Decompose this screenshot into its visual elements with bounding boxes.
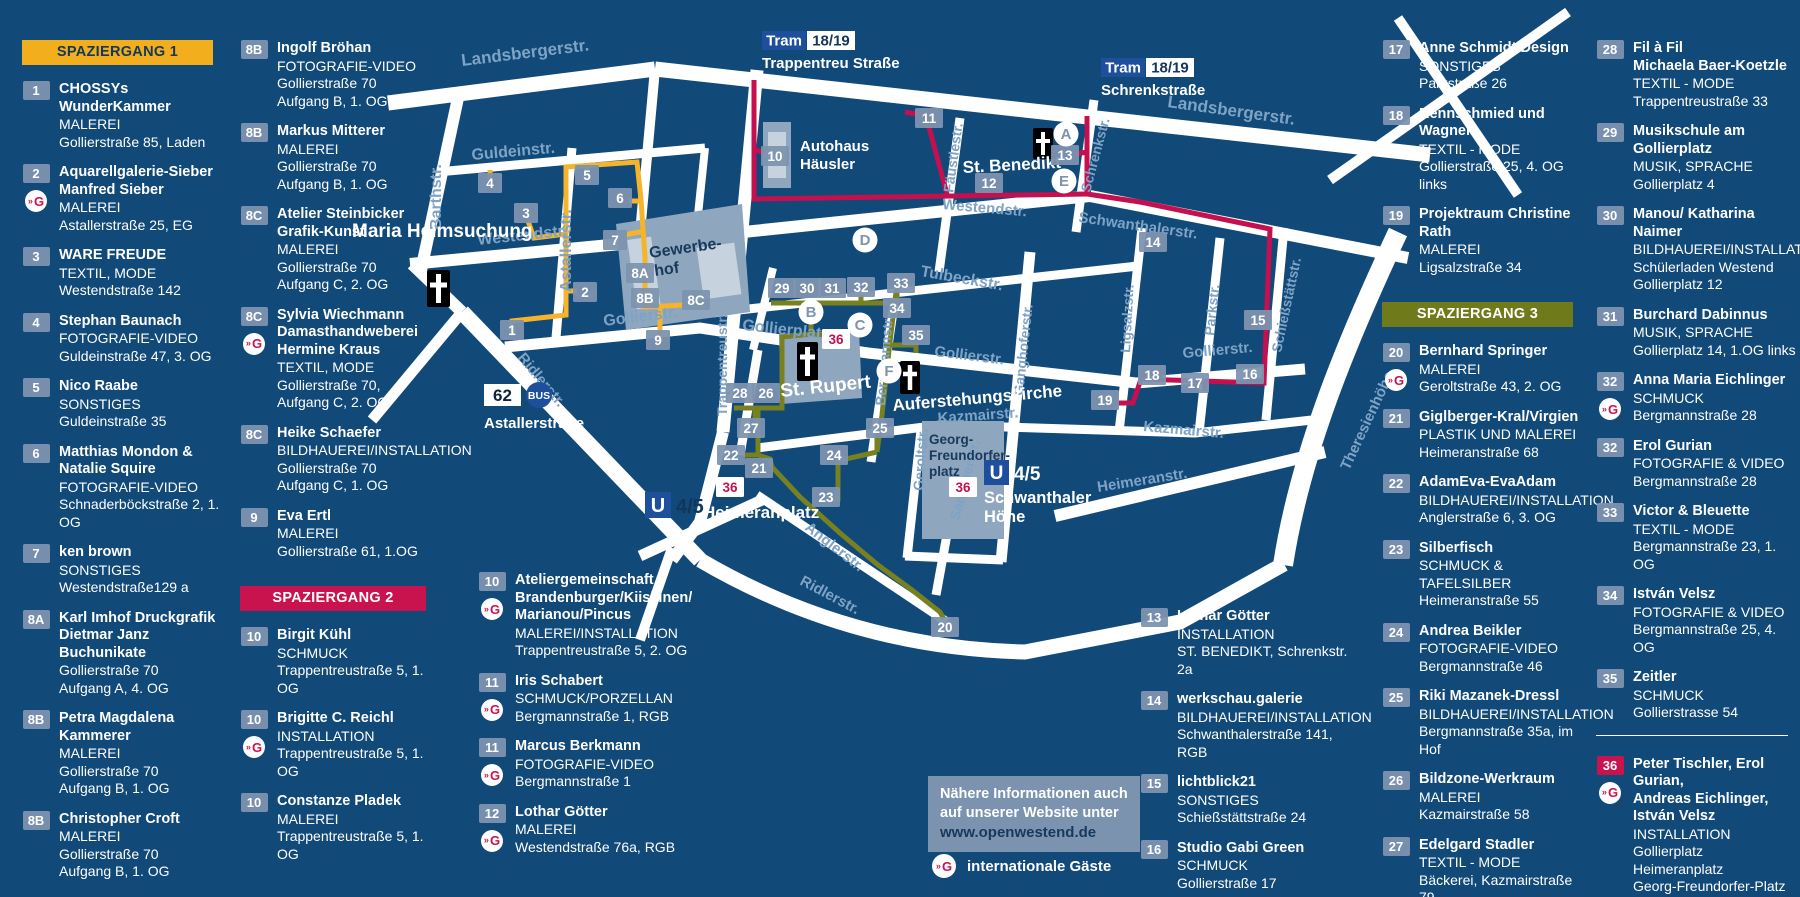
church-st-rupert-icon: [797, 342, 818, 381]
entry-address: Bergmannstraße 23, 1. OG: [1633, 538, 1796, 573]
international-guest-icon: »G: [1385, 369, 1407, 391]
map-marker-35: 35: [902, 325, 930, 345]
entry-number: 14: [1141, 691, 1168, 710]
directory-entry: 19Projektraum Christine RathMALEREILigsa…: [1382, 206, 1587, 276]
svg-text:8A: 8A: [631, 266, 649, 281]
map-marker-10: 10: [761, 146, 789, 166]
entry-name: Constanze Pladek: [277, 793, 440, 811]
entry-name: AdamEva-EvaAdam: [1419, 474, 1587, 492]
directory-entry: 12»GLothar GötterMALEREIWestendstraße 76…: [478, 804, 693, 857]
map-marker-2: 2: [573, 282, 597, 302]
entry-discipline: BILDHAUEREI/INSTALLATION: [1177, 709, 1360, 727]
entry-badges: 21: [1382, 409, 1410, 462]
entry-discipline: MALEREI/INSTALLATION: [515, 625, 692, 643]
svg-text:26: 26: [758, 386, 774, 401]
international-guest-icon: »G: [481, 764, 503, 786]
ubahn-u: U: [990, 463, 1004, 484]
entry-badges: 26: [1382, 771, 1410, 824]
svg-text:27: 27: [743, 421, 758, 436]
directory-column-2: 8BIngolf BröhanFOTOGRAFIE-VIDEOGollierst…: [240, 40, 440, 876]
international-guest-icon: »G: [481, 598, 503, 620]
entry-badges: 28: [1596, 40, 1624, 110]
entry-discipline: INSTALLATION: [1633, 826, 1796, 844]
entry-discipline: SCHMUCK: [1633, 390, 1785, 408]
bus-number: 62: [493, 386, 512, 405]
directory-entry: 8BPetra Magdalena KammererMALEREIGollier…: [22, 710, 227, 798]
entry-badges: 29: [1596, 123, 1624, 193]
entry-number: 6: [23, 444, 50, 463]
entry-discipline: TEXTIL - MODE: [1633, 75, 1787, 93]
tram-number: 18/19: [1151, 60, 1189, 77]
entry-discipline: MUSIK, SPRACHE: [1633, 324, 1796, 342]
entry-number: 29: [1597, 123, 1624, 142]
directory-entry: 10»GBrigitte C. ReichlINSTALLATIONTrappe…: [240, 710, 440, 780]
directory-entry: 20»GBernhard SpringerMALEREIGeroltstraße…: [1382, 343, 1587, 396]
svg-text:F: F: [884, 363, 893, 380]
directory-entry: 21Giglberger-Kral/VirgienPLASTIK UND MAL…: [1382, 409, 1587, 462]
entry-badges: 10»G: [478, 572, 506, 660]
directory-entry: 9Eva ErtlMALEREIGollierstraße 61, 1.OG: [240, 508, 440, 561]
entry-badges: 8A: [22, 610, 50, 698]
directory-entry: 31Burchard DabinnusMUSIK, SPRACHEGollier…: [1596, 307, 1796, 360]
entry-badges: 8B: [22, 811, 50, 881]
entry-name: Manou/ Katharina Naimer: [1633, 206, 1796, 241]
website-url[interactable]: www.openwestend.de: [940, 823, 1128, 843]
svg-text:34: 34: [889, 301, 905, 316]
entry-name: Ingolf Bröhan: [277, 40, 416, 58]
svg-text:14: 14: [1145, 235, 1161, 250]
directory-entry: 34István VelszFOTOGRAFIE & VIDEOBergmann…: [1596, 586, 1796, 656]
directory-entry: 8BChristopher CroftMALEREIGollierstraße …: [22, 811, 227, 881]
svg-text:D: D: [860, 232, 871, 249]
entry-badges: 33: [1596, 503, 1624, 573]
entry-number: 4: [23, 313, 50, 332]
entry-number: 32: [1597, 372, 1624, 391]
entry-address: Gollierstrasse 54: [1633, 704, 1738, 722]
entry-badges: 30: [1596, 206, 1624, 294]
entry-name: Heike Schaefer: [277, 425, 440, 443]
directory-entry: 10Constanze PladekMALEREITrappentreustra…: [240, 793, 440, 863]
entry-badges: 12»G: [478, 804, 506, 857]
map-marker-22: 22: [717, 445, 745, 465]
entry-discipline: SCHMUCK/PORZELLAN: [515, 690, 673, 708]
entry-name: Edelgard Stadler: [1419, 837, 1587, 855]
directory-entry: 3WARE FREUDETEXTIL, MODEWestendstraße 14…: [22, 247, 227, 300]
entry-badges: 32»G: [1596, 372, 1624, 425]
directory-entry: 30Manou/ Katharina NaimerBILDHAUEREI/INS…: [1596, 206, 1796, 294]
map-marker-18: 18: [1138, 365, 1166, 385]
entry-name: Stephan Baunach: [59, 313, 212, 331]
street-label: Gollierstr.: [1182, 339, 1253, 362]
entry-address: Ligsalzstraße 34: [1419, 259, 1587, 277]
info-line2: auf unserer Website unter: [940, 804, 1128, 823]
entry-address: Anglerstraße 6, 3. OG: [1419, 509, 1587, 527]
svg-text:17: 17: [1187, 376, 1202, 391]
entry-badges: 36»G: [1596, 756, 1624, 896]
entry-number: 10: [479, 572, 506, 591]
entry-number: 20: [1383, 343, 1410, 362]
entry-name: Rennschmied und Wagner: [1419, 106, 1587, 141]
walk-header: SPAZIERGANG 1: [22, 40, 213, 65]
entry-number: 33: [1597, 503, 1624, 522]
entry-number: 16: [1141, 840, 1168, 859]
map-marker-E: E: [1052, 169, 1077, 194]
entry-address: Bäckerei, Kazmairstraße 79: [1419, 872, 1587, 897]
street-gfp-bottom: [905, 556, 1003, 560]
entry-address: Heimeranstraße 55: [1419, 592, 1587, 610]
directory-entry: 6Matthias Mondon & Natalie SquireFOTOGRA…: [22, 444, 227, 532]
entry-badges: 6: [22, 444, 50, 532]
entry-name: Projektraum Christine Rath: [1419, 206, 1587, 241]
entry-name: Eva Ertl: [277, 508, 418, 526]
tram-station-name: Trappentreu Straße: [762, 55, 900, 72]
gfp-label-line1: Georg-: [929, 432, 973, 447]
directory-entry: 17Anne Schmidt DesignSONSTIGESParkstraße…: [1382, 40, 1587, 93]
entry-address: Trappentreustraße 5, 1. OG: [277, 662, 440, 697]
tram-station-name: Schrenkstraße: [1101, 82, 1205, 99]
tram-label: Tram: [1105, 60, 1141, 77]
entry-badges: 17: [1382, 40, 1410, 93]
entry-discipline: MALEREI: [277, 811, 440, 829]
entry-number: 8B: [241, 123, 268, 142]
svg-text:23: 23: [818, 490, 834, 505]
entry-discipline: BILDHAUEREI/INSTALLATION: [1419, 706, 1587, 724]
international-guest-icon: »G: [1599, 782, 1621, 804]
map-marker-29: 29: [768, 278, 796, 298]
directory-entry: 15lichtblick21SONSTIGESSchießstättstraße…: [1140, 774, 1360, 827]
walk-header: SPAZIERGANG 2: [240, 586, 426, 611]
map-marker-11: 11: [915, 108, 943, 128]
svg-text:3: 3: [522, 206, 530, 221]
street-label: Landsbergerstr.: [460, 35, 590, 70]
entry-badges: 8C: [240, 425, 268, 495]
directory-column-6: 28Fil à Fil Michaela Baer-KoetzleTEXTIL …: [1596, 40, 1796, 897]
svg-text:7: 7: [611, 233, 619, 248]
entry-badges: 23: [1382, 540, 1410, 610]
svg-text:25: 25: [872, 421, 888, 436]
ubahn-lines: 4/5: [1014, 464, 1041, 485]
entry-badges: 8B: [22, 710, 50, 798]
entry-address: Gollierstraße 70 Aufgang B, 1. OG: [59, 763, 227, 798]
entry-name: Karl Imhof Druckgrafik Dietmar Janz Buch…: [59, 610, 227, 663]
entry-discipline: MALEREI: [277, 241, 404, 259]
entry-discipline: TEXTIL - MODE: [1419, 854, 1587, 872]
entry-address: Gollierstraße 70 Aufgang B, 1. OG: [277, 158, 388, 193]
svg-text:B: B: [806, 304, 817, 321]
entry-address: Schülerladen Westend Gollierplatz 12: [1633, 259, 1796, 294]
church-auferstehungskirche-icon: [900, 361, 920, 394]
directory-entry: 32»GAnna Maria EichlingerSCHMUCKBergmann…: [1596, 372, 1796, 425]
entry-address: Geroltstraße 43, 2. OG: [1419, 378, 1561, 396]
directory-column-4: 13Lothar GötterINSTALLATIONST. BENEDIKT,…: [1140, 608, 1360, 897]
gewerbehof-label-line2: hof: [653, 260, 681, 280]
ubahn-lines: 4/5: [676, 496, 704, 518]
entry-number: 28: [1597, 40, 1624, 59]
svg-text:31: 31: [824, 281, 840, 296]
svg-text:E: E: [1059, 173, 1069, 190]
entry-address: Gollierstraße 17: [1177, 875, 1304, 893]
schwanthaler-label-line1: Schwanthaler: [984, 489, 1092, 507]
guest-legend: »G internationale Gäste: [932, 854, 1111, 878]
entry-badges: 10: [240, 793, 268, 863]
entry-discipline: FOTOGRAFIE-VIDEO: [59, 479, 227, 497]
entry-address: Gollierstraße 70 Aufgang A, 4. OG: [59, 662, 227, 697]
svg-text:21: 21: [751, 461, 767, 476]
international-guest-icon: »G: [25, 190, 47, 212]
entry-name: Birgit Kühl: [277, 627, 440, 645]
map-marker-21: 21: [745, 458, 773, 478]
entry-number: 31: [1597, 307, 1624, 326]
entry-number: 9: [241, 508, 268, 527]
entry-address: Heimeranstraße 68: [1419, 444, 1578, 462]
map-marker-12: 12: [975, 173, 1003, 193]
entry-number: 21: [1383, 409, 1410, 428]
entry-number: 8C: [241, 307, 268, 326]
map-marker-25: 25: [866, 418, 894, 438]
entry-address: Gollierplatz 4: [1633, 176, 1796, 194]
tram-stop-trappentreu: Tram 18/19 Trappentreu Straße: [762, 31, 900, 72]
directory-entry: 25Riki Mazanek-DresslBILDHAUEREI/INSTALL…: [1382, 688, 1587, 758]
entry-address: Trappentreustraße 5, 2. OG: [515, 642, 692, 660]
map-marker-A: A: [1054, 122, 1079, 147]
entry-number: 1: [23, 81, 50, 100]
entry-badges: 7: [22, 544, 50, 597]
directory-entry: 10Birgit KühlSCHMUCKTrappentreustraße 5,…: [240, 627, 440, 697]
entry-name: Erol Gurian: [1633, 438, 1784, 456]
entry-number: 2: [23, 164, 50, 183]
map-marker-D: D: [853, 228, 878, 253]
map-marker-26: 26: [752, 383, 780, 403]
entry-address: Guldeinstraße 35: [59, 413, 166, 431]
entry-name: Sylvia Wiechmann Damasthandweberei Hermi…: [277, 307, 418, 360]
entry-discipline: TEXTIL - MODE: [1633, 521, 1796, 539]
entry-number: 35: [1597, 669, 1624, 688]
entry-badges: 8B: [240, 123, 268, 193]
svg-text:33: 33: [893, 276, 909, 291]
entry-discipline: BILDHAUEREI/INSTALLATION: [1419, 492, 1587, 510]
entry-name: Andrea Beikler: [1419, 623, 1558, 641]
directory-entry: 8C»GSylvia Wiechmann Damasthandweberei H…: [240, 307, 440, 412]
entry-name: Nico Raabe: [59, 378, 166, 396]
map-marker-36: 36: [716, 477, 744, 497]
directory-entry: 10»GAteliergemeinschaft Brandenburger/Ki…: [478, 572, 693, 660]
entry-address: Westendstraße 142: [59, 282, 181, 300]
directory-entry: 14werkschau.galerieBILDHAUEREI/INSTALLAT…: [1140, 691, 1360, 761]
entry-discipline: FOTOGRAFIE-VIDEO: [1419, 640, 1558, 658]
map-marker-36: 36: [822, 329, 850, 349]
entry-address: Bergmannstraße 1: [515, 773, 654, 791]
map-marker-4: 4: [478, 173, 502, 193]
entry-address: Gollierplatz Heimeranplatz Georg-Freundo…: [1633, 843, 1796, 896]
entry-name: Brigitte C. Reichl: [277, 710, 440, 728]
svg-text:8C: 8C: [687, 293, 705, 308]
entry-discipline: BILDHAUEREI/INSTALLATION: [1633, 241, 1796, 259]
svg-text:24: 24: [826, 448, 842, 463]
entry-discipline: FOTOGRAFIE-VIDEO: [59, 330, 212, 348]
entry-badges: 27: [1382, 837, 1410, 897]
entry-badges: 10»G: [240, 710, 268, 780]
directory-entry: 27Edelgard StadlerTEXTIL - MODEBäckerei,…: [1382, 837, 1587, 897]
svg-text:29: 29: [774, 281, 789, 296]
entry-name: Anna Maria Eichlinger: [1633, 372, 1785, 390]
map-marker-6: 6: [608, 188, 632, 208]
street-label: Astallerstr.: [558, 209, 575, 292]
directory-entry: 36»GPeter Tischler, Erol Gurian, Andreas…: [1596, 756, 1796, 896]
entry-number: 18: [1383, 106, 1410, 125]
entry-address: Schnaderböckstraße 2, 1. OG: [59, 496, 227, 531]
svg-text:36: 36: [955, 480, 971, 495]
entry-discipline: SONSTIGES: [1419, 58, 1569, 76]
entry-badges: 32: [1596, 438, 1624, 491]
directory-entry: 28Fil à Fil Michaela Baer-KoetzleTEXTIL …: [1596, 40, 1796, 110]
entry-badges: 10: [240, 627, 268, 697]
entry-address: Gollierstraße 25, 4. OG links: [1419, 158, 1587, 193]
directory-entry: 7ken brownSONSTIGESWestendstraße129 a: [22, 544, 227, 597]
bus-label: BUS: [528, 390, 550, 402]
entry-address: ST. BENEDIKT, Schrenkstr. 2a: [1177, 643, 1360, 678]
svg-text:15: 15: [1250, 313, 1266, 328]
svg-text:36: 36: [722, 480, 738, 495]
entry-number: 10: [241, 627, 268, 646]
entry-badges: 22: [1382, 474, 1410, 527]
entry-number: 34: [1597, 586, 1624, 605]
entry-badges: 8C: [240, 206, 268, 294]
directory-entry: 22AdamEva-EvaAdamBILDHAUEREI/INSTALLATIO…: [1382, 474, 1587, 527]
entry-name: werkschau.galerie: [1177, 691, 1360, 709]
map-marker-1: 1: [500, 320, 524, 340]
entry-name: Bernhard Springer: [1419, 343, 1561, 361]
entry-discipline: INSTALLATION: [277, 728, 440, 746]
entry-discipline: FOTOGRAFIE-VIDEO: [277, 58, 416, 76]
entry-name: Zeitler: [1633, 669, 1738, 687]
entry-badges: 2»G: [22, 164, 50, 234]
map-marker-27: 27: [737, 418, 765, 438]
entry-number: 11: [479, 673, 506, 692]
entry-discipline: SCHMUCK: [277, 645, 440, 663]
svg-text:10: 10: [767, 149, 782, 164]
street-label: Ganghoferstr.: [1010, 303, 1036, 396]
entry-discipline: MALEREI: [1419, 789, 1555, 807]
entry-badges: 8B: [240, 40, 268, 110]
entry-address: Schießstättstraße 24: [1177, 809, 1306, 827]
guest-legend-label: internationale Gäste: [967, 858, 1111, 875]
entry-badges: 25: [1382, 688, 1410, 758]
map-marker-30: 30: [793, 278, 821, 298]
directory-entry: 8BMarkus MittererMALEREIGollierstraße 70…: [240, 123, 440, 193]
entry-name: Christopher Croft: [59, 811, 180, 829]
entry-discipline: MALEREI: [59, 828, 180, 846]
entry-name: Atelier Steinbicker Grafik-Kunst: [277, 206, 404, 241]
entry-discipline: MALEREI: [1419, 241, 1587, 259]
entry-number: 8C: [241, 206, 268, 225]
svg-text:9: 9: [654, 333, 662, 348]
entry-number: 24: [1383, 623, 1410, 642]
entry-discipline: SONSTIGES: [59, 562, 189, 580]
entry-badges: 18: [1382, 106, 1410, 194]
entry-number: 12: [479, 804, 506, 823]
directory-entry: 2»GAquarellgalerie-Sieber Manfred Sieber…: [22, 164, 227, 234]
entry-number: 25: [1383, 688, 1410, 707]
map-marker-31: 31: [818, 278, 846, 298]
entry-name: WARE FREUDE: [59, 247, 181, 265]
entry-address: Bergmannstraße 25, 4. OG: [1633, 621, 1796, 656]
directory-entry: 4Stephan BaunachFOTOGRAFIE-VIDEOGuldeins…: [22, 313, 227, 366]
tram-stop-schrenkstrasse: Tram 18/19 Schrenkstraße: [1101, 58, 1205, 99]
directory-column-1: SPAZIERGANG 11CHOSSYs WunderKammerMALERE…: [22, 40, 227, 894]
entry-discipline: TEXTIL, MODE: [59, 265, 181, 283]
directory-entry: 11»GMarcus BerkmannFOTOGRAFIE-VIDEOBergm…: [478, 738, 693, 791]
entry-name: Riki Mazanek-Dressl: [1419, 688, 1587, 706]
map-marker-16: 16: [1236, 364, 1264, 384]
entry-name: Aquarellgalerie-Sieber Manfred Sieber: [59, 164, 213, 199]
svg-text:A: A: [1061, 126, 1072, 143]
directory-entry: 33Victor & BleuetteTEXTIL - MODEBergmann…: [1596, 503, 1796, 573]
entry-address: Bergmannstraße 35a, im Hof: [1419, 723, 1587, 758]
bus-station-name: Astallerstraße: [484, 415, 584, 432]
entry-badges: 11»G: [478, 673, 506, 726]
svg-text:C: C: [855, 317, 866, 334]
schwanthaler-label-line2: Höhe: [984, 508, 1025, 526]
entry-name: lichtblick21: [1177, 774, 1306, 792]
entry-number: 13: [1141, 608, 1168, 627]
entry-discipline: FOTOGRAFIE & VIDEO: [1633, 604, 1796, 622]
entry-badges: 9: [240, 508, 268, 561]
map-marker-28: 28: [726, 383, 754, 403]
international-guest-icon: »G: [481, 699, 503, 721]
street-westendstr-east: [705, 196, 1090, 236]
international-guest-icon: »G: [932, 854, 956, 878]
svg-text:20: 20: [937, 620, 952, 635]
entry-badges: 34: [1596, 586, 1624, 656]
entry-name: Marcus Berkmann: [515, 738, 654, 756]
svg-text:28: 28: [732, 386, 748, 401]
autohaus-label-line2: Häusler: [800, 156, 855, 173]
entry-name: István Velsz: [1633, 586, 1796, 604]
international-guest-icon: »G: [1599, 398, 1621, 420]
directory-entry: 26Bildzone-WerkraumMALEREIKazmairstraße …: [1382, 771, 1587, 824]
map-marker-B: B: [799, 300, 824, 325]
svg-text:12: 12: [981, 176, 996, 191]
international-guest-icon: »G: [243, 333, 265, 355]
entry-discipline: PLASTIK UND MALEREI: [1419, 426, 1578, 444]
bus-stop-astallerstrasse: 62 BUS Astallerstraße: [484, 382, 584, 432]
entry-number: 30: [1597, 206, 1624, 225]
entry-name: Lothar Götter: [1177, 608, 1360, 626]
svg-text:30: 30: [799, 281, 814, 296]
map-marker-20: 20: [931, 617, 959, 637]
entry-number: 10: [241, 793, 268, 812]
entry-number: 23: [1383, 540, 1410, 559]
svg-text:11: 11: [922, 111, 937, 126]
map-marker-19: 19: [1091, 390, 1119, 410]
svg-text:19: 19: [1097, 393, 1112, 408]
entry-address: Westendstraße129 a: [59, 579, 189, 597]
entry-address: Gollierstraße 70 Aufgang C, 1. OG: [277, 460, 440, 495]
svg-text:35: 35: [908, 328, 924, 343]
entry-discipline: MALEREI: [277, 525, 418, 543]
entry-discipline: MALEREI: [515, 821, 675, 839]
entry-badges: 3: [22, 247, 50, 300]
svg-text:5: 5: [583, 168, 591, 183]
entry-badges: 8C»G: [240, 307, 268, 412]
entry-badges: 16: [1140, 840, 1168, 893]
entry-discipline: SCHMUCK: [1633, 687, 1738, 705]
international-guest-icon: »G: [481, 830, 503, 852]
map-marker-15: 15: [1244, 310, 1272, 330]
street-label: Kazmairstr.: [1143, 418, 1225, 442]
map-marker-8A: 8A: [626, 263, 654, 283]
entry-number: 27: [1383, 837, 1410, 856]
